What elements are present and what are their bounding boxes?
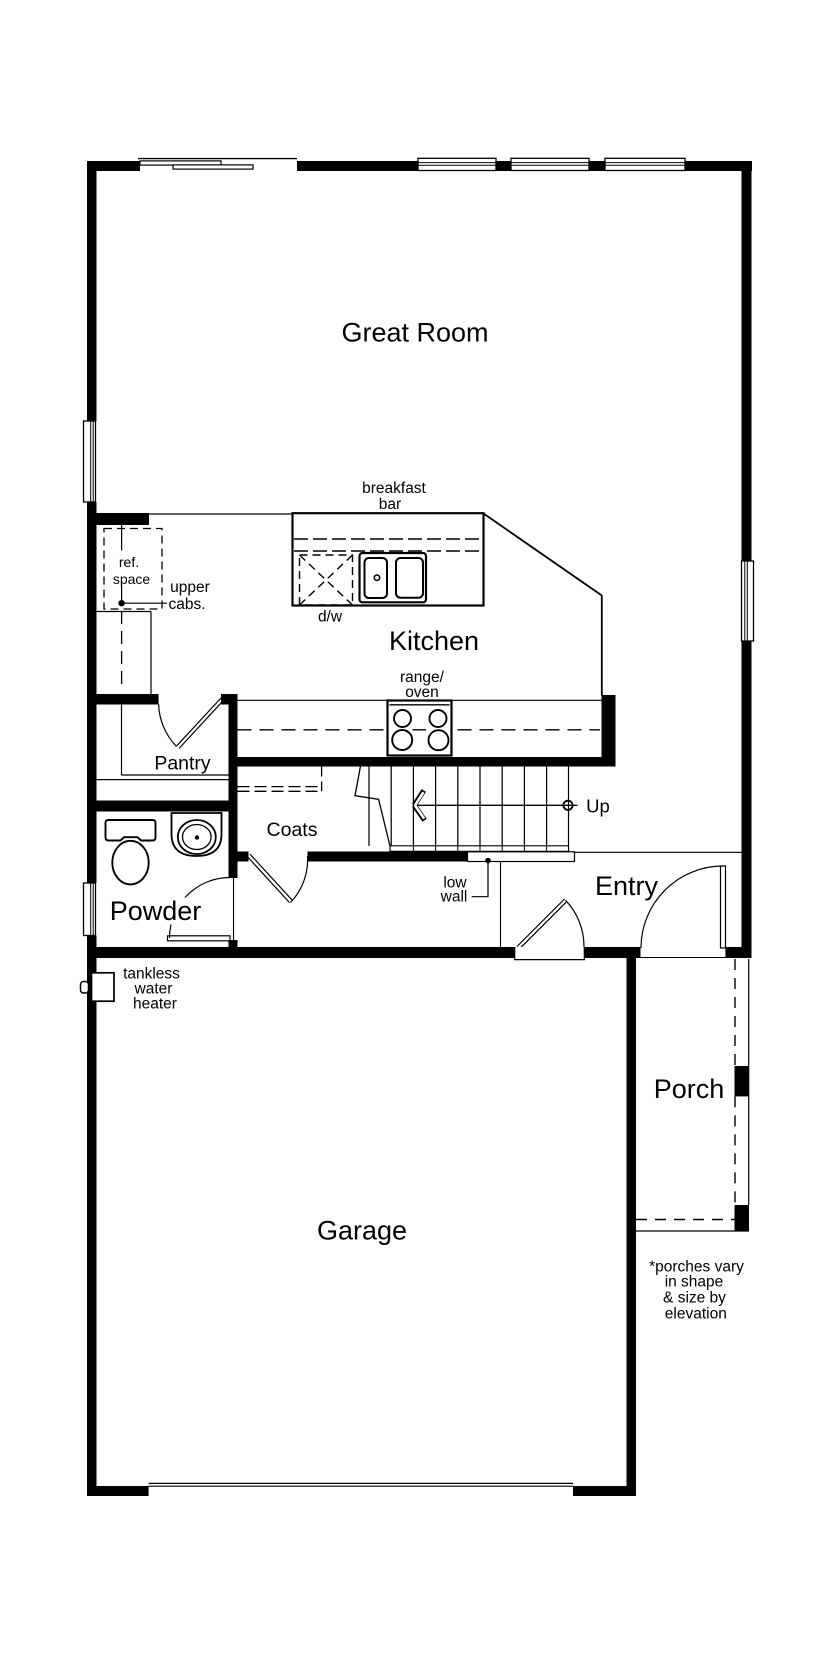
svg-text:elevation: elevation [665,1305,727,1322]
svg-text:Entry: Entry [595,871,659,901]
svg-text:upper: upper [170,579,210,596]
svg-text:breakfast: breakfast [362,480,426,497]
svg-text:& size by: & size by [663,1290,726,1307]
svg-text:oven: oven [405,684,439,701]
svg-text:Garage: Garage [317,1215,407,1245]
svg-text:d/w: d/w [318,609,343,626]
svg-text:ref.: ref. [119,554,139,570]
svg-text:Powder: Powder [110,896,202,926]
svg-text:Coats: Coats [267,819,318,841]
svg-text:bar: bar [379,496,401,513]
svg-text:cabs.: cabs. [168,596,205,613]
svg-text:Kitchen: Kitchen [389,626,479,656]
svg-text:in shape: in shape [665,1274,724,1291]
svg-text:heater: heater [133,996,177,1013]
svg-text:Great Room: Great Room [341,318,488,348]
svg-text:Up: Up [586,795,610,816]
svg-text:space: space [113,571,151,587]
svg-text:Porch: Porch [654,1074,725,1104]
svg-text:Pantry: Pantry [154,753,211,775]
svg-text:wall: wall [440,889,468,906]
